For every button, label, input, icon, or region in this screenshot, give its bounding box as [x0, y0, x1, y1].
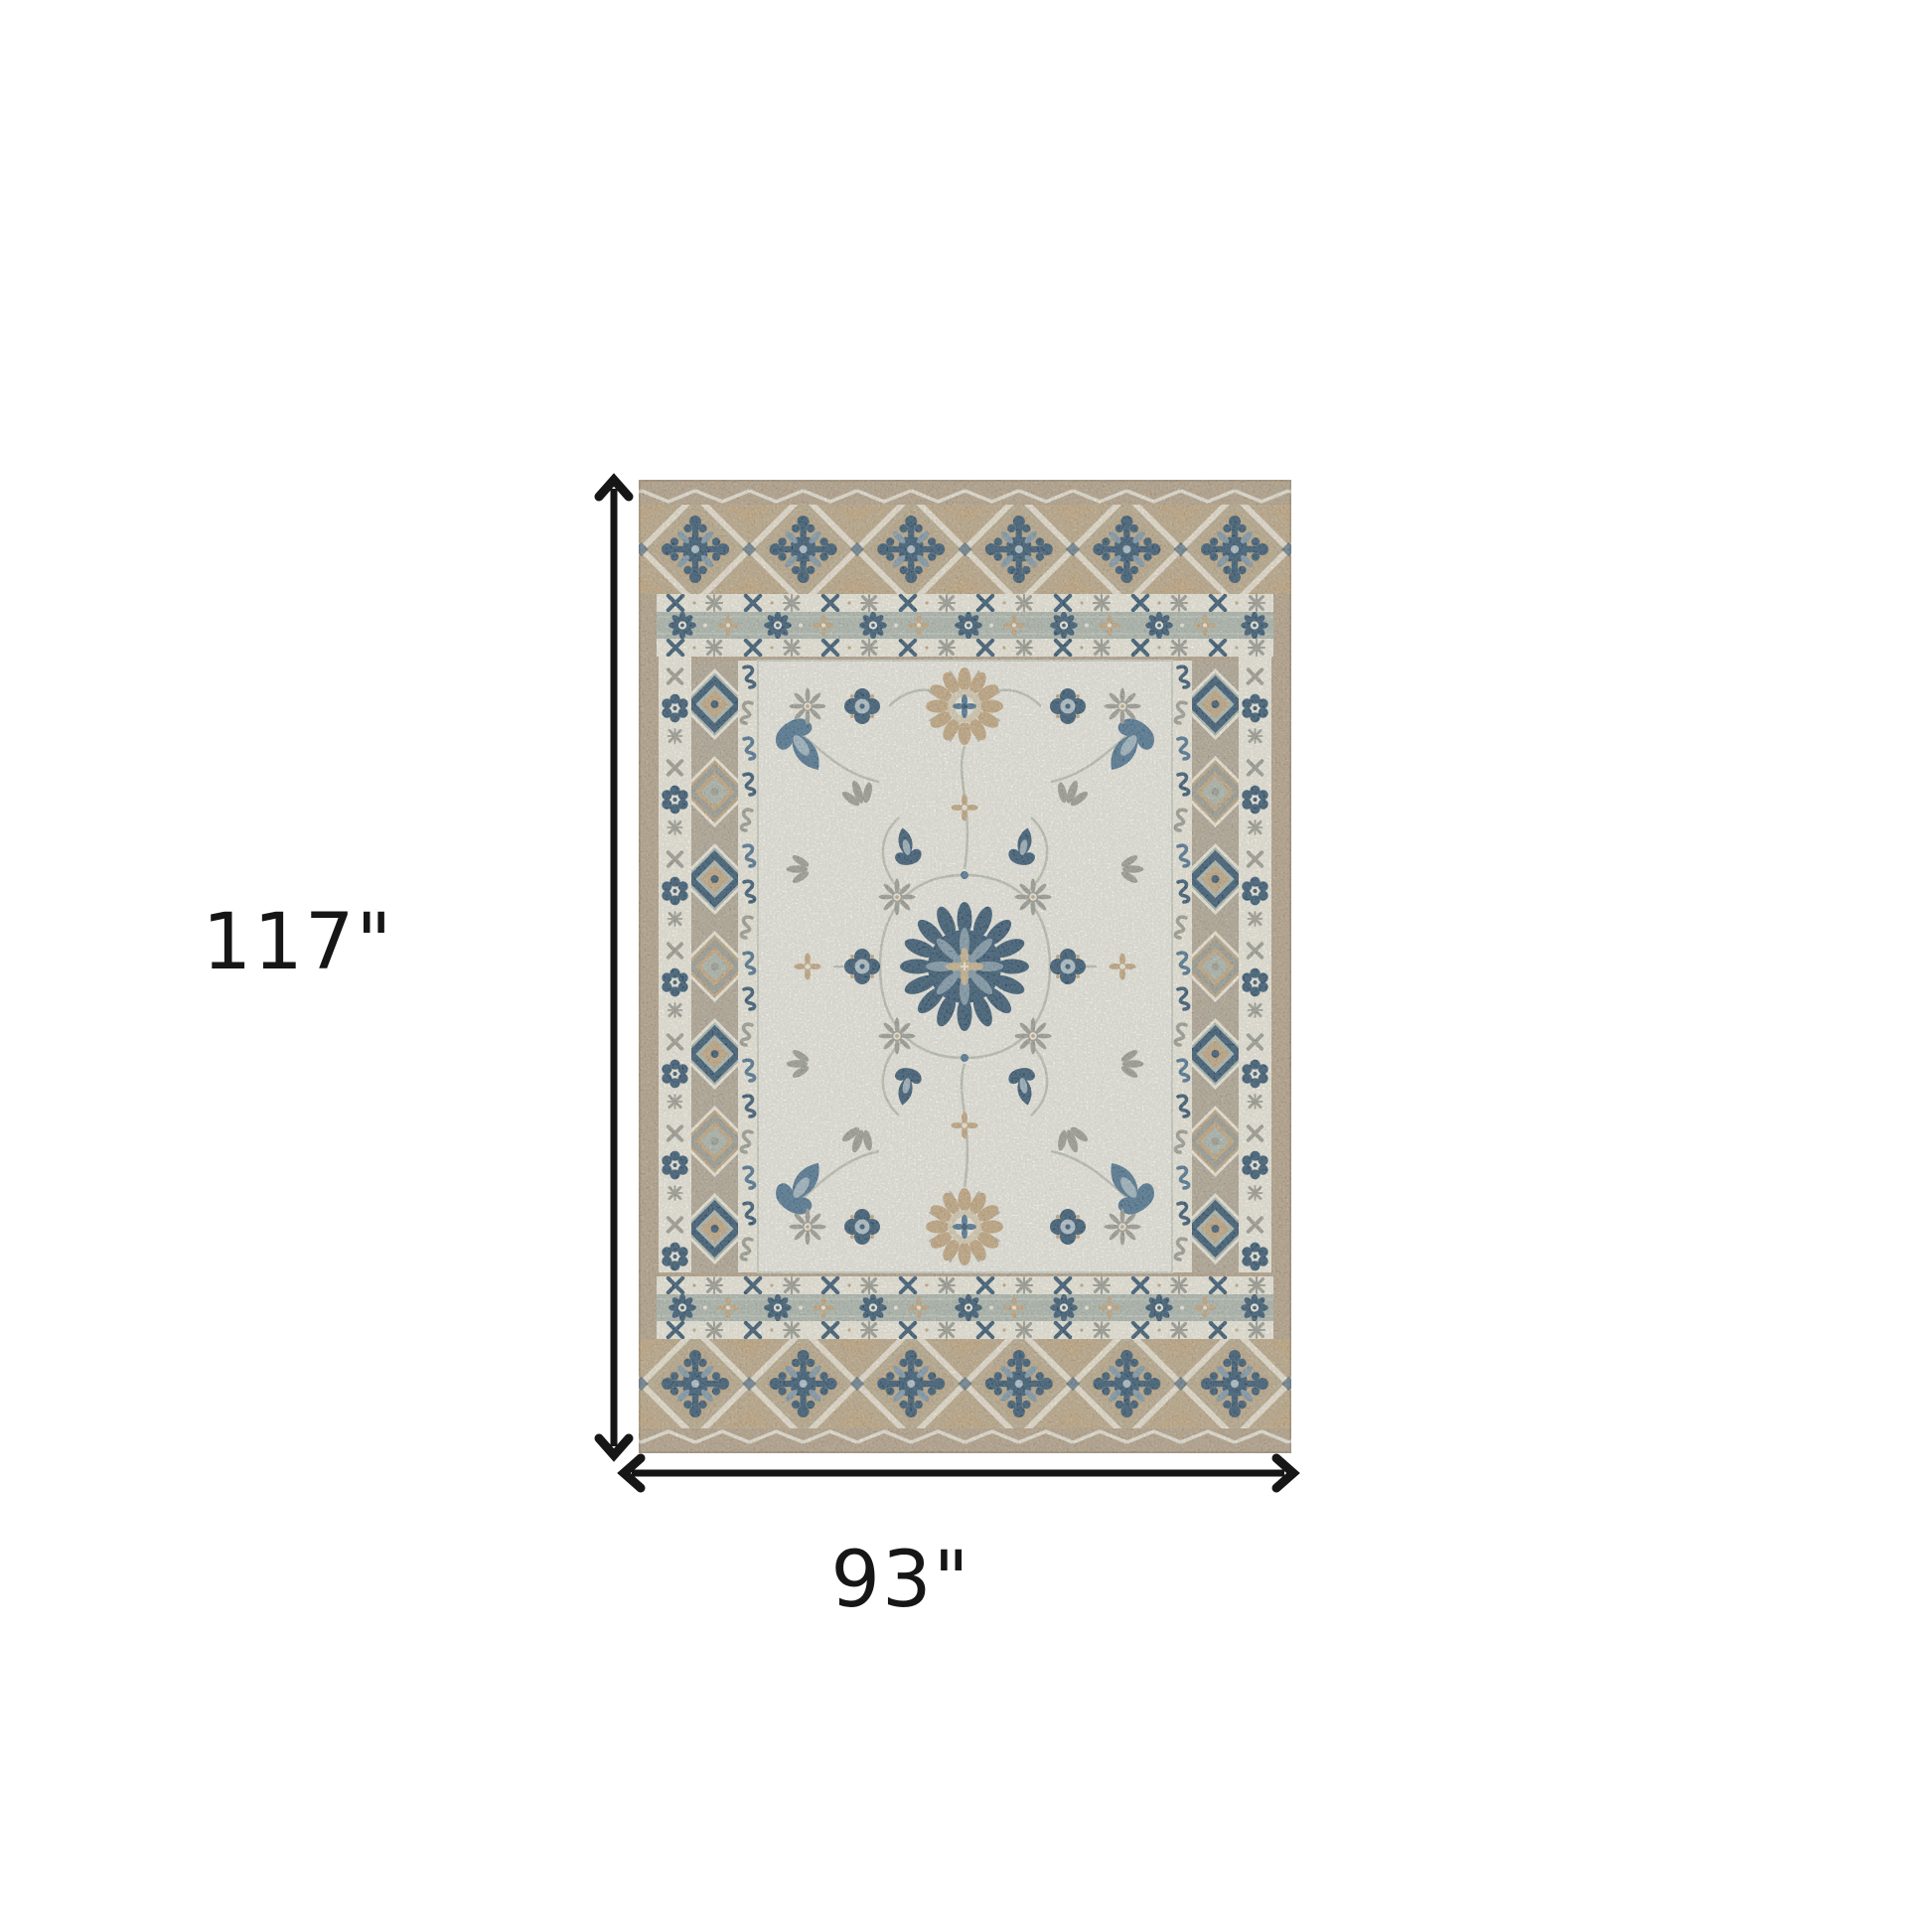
product-dimension-diagram: 117" 93" [0, 0, 1932, 1932]
rug-texture-light [639, 480, 1291, 1453]
width-label: 93" [782, 1542, 1020, 1619]
height-label: 117" [179, 904, 417, 981]
rug-photo [639, 480, 1291, 1453]
width-arrow [624, 1458, 1293, 1488]
height-arrow [599, 480, 629, 1455]
